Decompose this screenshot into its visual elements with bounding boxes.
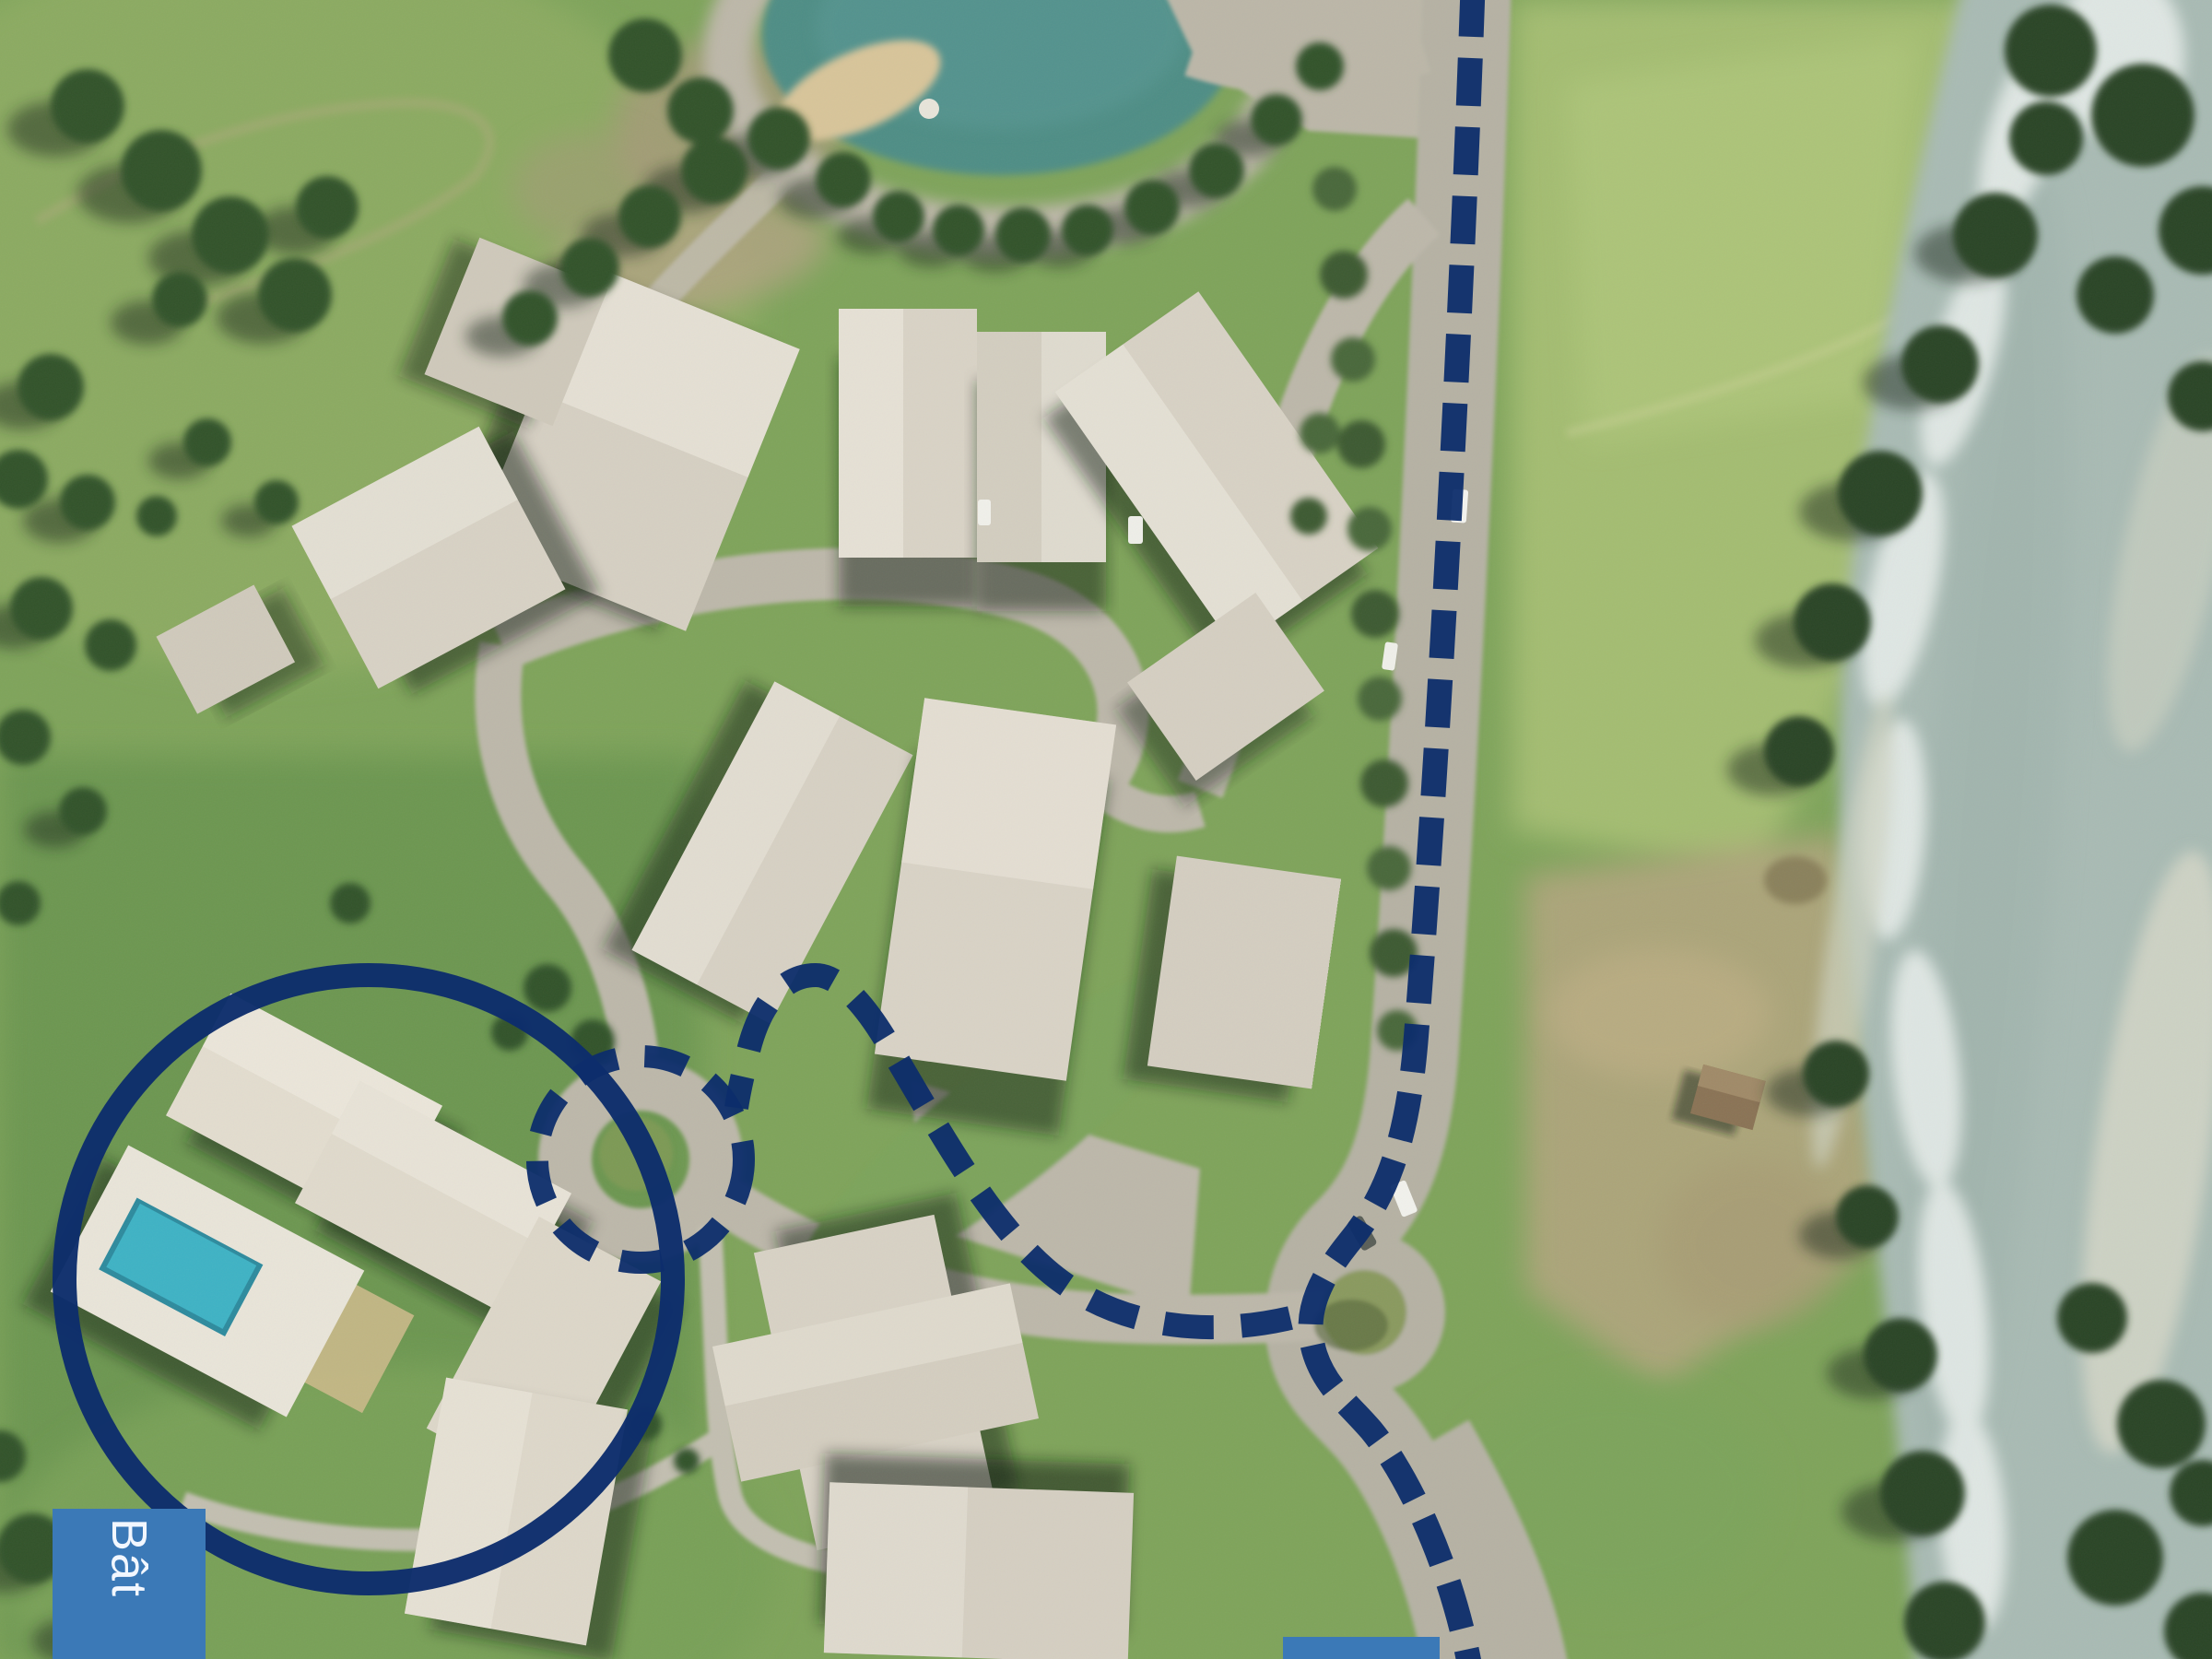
map-canvas[interactable]: Bât [0,0,2212,1659]
second-building-label [1283,1637,1440,1659]
building-label: Bât [53,1509,206,1659]
building-label-text: Bât [100,1509,158,1598]
photo-grain [0,0,2212,1659]
satellite-scene [0,0,2212,1659]
